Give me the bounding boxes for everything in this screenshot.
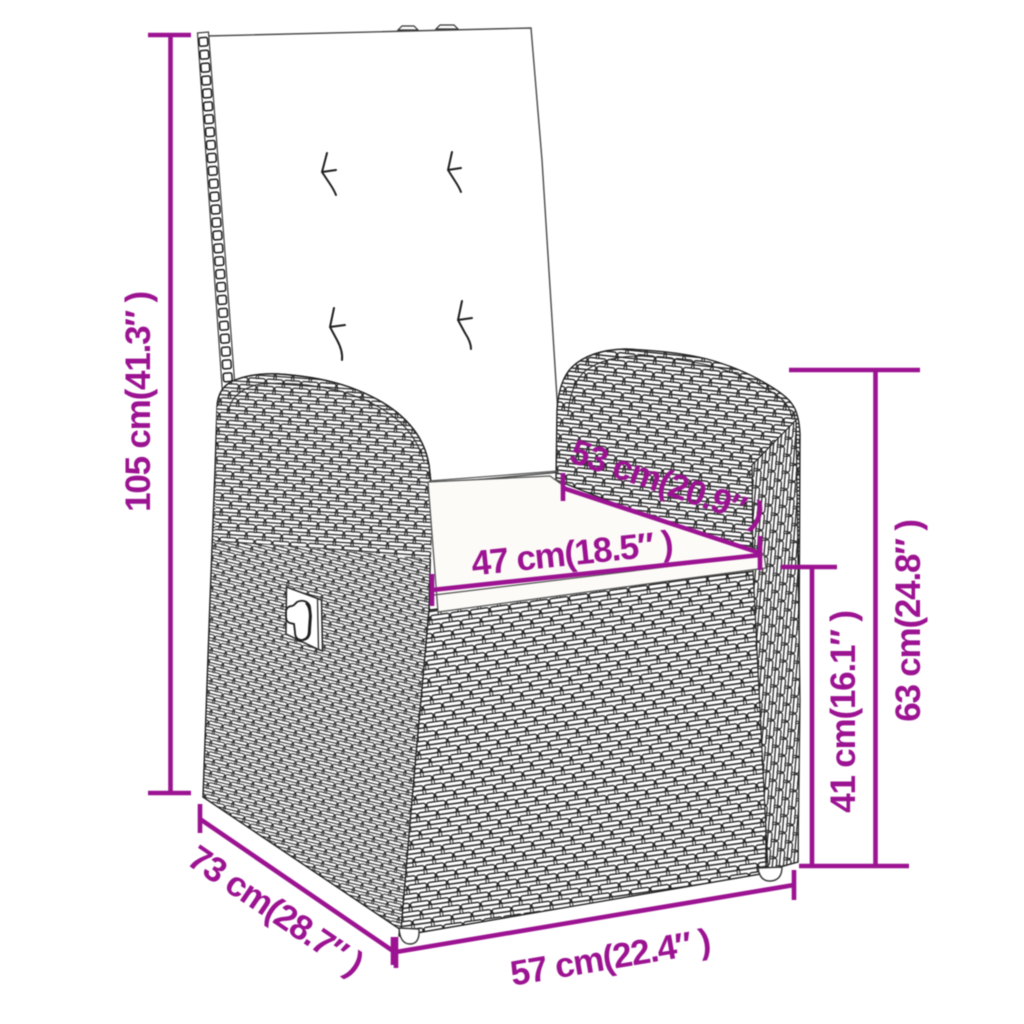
svg-text:105 cm(41.3″ ): 105 cm(41.3″ ) [119,292,158,512]
svg-text:41 cm(16.1″ ): 41 cm(16.1″ ) [824,611,863,813]
svg-text:63 cm(24.8″ ): 63 cm(24.8″ ) [889,520,928,722]
